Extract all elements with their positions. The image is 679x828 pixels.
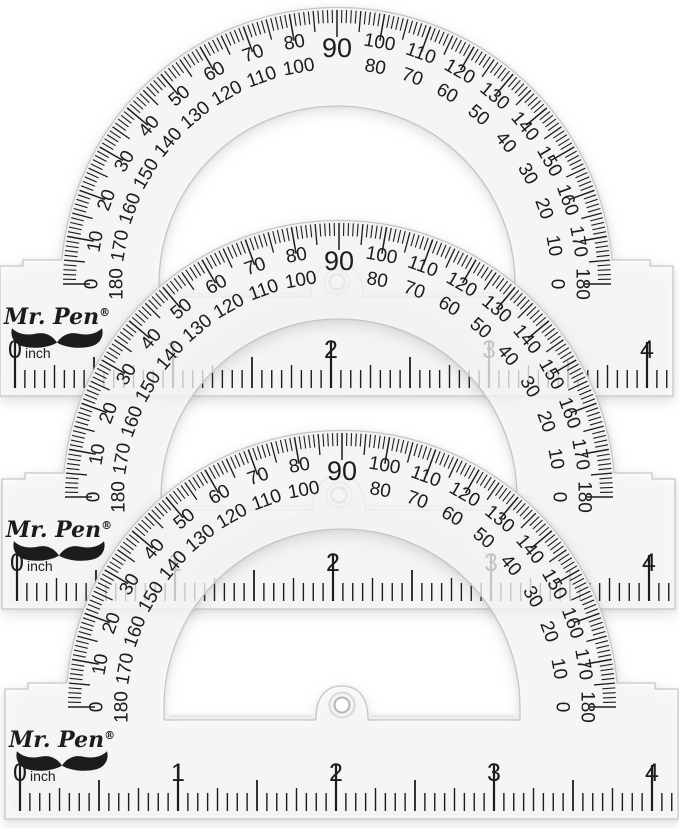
protractor-bottom: 0180101702016030150401405013060120701108… (0, 423, 679, 828)
degree-tick (351, 10, 352, 23)
degree-tick (603, 693, 616, 694)
degree-label-inner: 80 (368, 478, 392, 502)
degree-tick (353, 223, 354, 236)
degree-label-outer: 80 (284, 244, 308, 268)
degree-tick (323, 10, 324, 23)
degree-label-ninety: 90 (322, 33, 352, 63)
degree-label-outer: 180 (577, 691, 598, 723)
degree-label-inner: 180 (112, 691, 133, 723)
ruler-inch-label: 3 (487, 759, 501, 787)
hole-icon (335, 698, 350, 713)
degree-label-outer: 10 (89, 652, 113, 676)
ruler-inch-label: 1 (171, 759, 185, 787)
brand-name: Mr. Pen (8, 727, 104, 753)
degree-label-outer: 80 (287, 454, 311, 478)
degree-tick (325, 223, 326, 236)
degree-label-ninety: 90 (327, 456, 357, 486)
registered-mark: ® (104, 729, 115, 742)
degree-label-inner: 80 (365, 268, 389, 292)
ruler-inch-label: 4 (645, 759, 659, 787)
degree-tick (328, 433, 329, 446)
degree-label-outer: 0 (87, 702, 108, 713)
degree-tick (68, 693, 81, 694)
degree-label-inner: 0 (552, 702, 573, 713)
degree-tick (356, 433, 357, 446)
degree-label-inner: 80 (363, 55, 387, 79)
protractor-group: 0180101702016030150401405013060120701108… (5, 430, 678, 819)
degree-label-outer: 80 (282, 31, 306, 55)
degree-label-inner: 10 (546, 657, 570, 681)
degree-label-ninety: 90 (324, 246, 354, 276)
product-photo: 0180101702016030150401405013060120701108… (0, 0, 679, 828)
ruler-inch-label: 2 (329, 759, 343, 787)
brand-text: Mr. Pen® (8, 727, 115, 753)
